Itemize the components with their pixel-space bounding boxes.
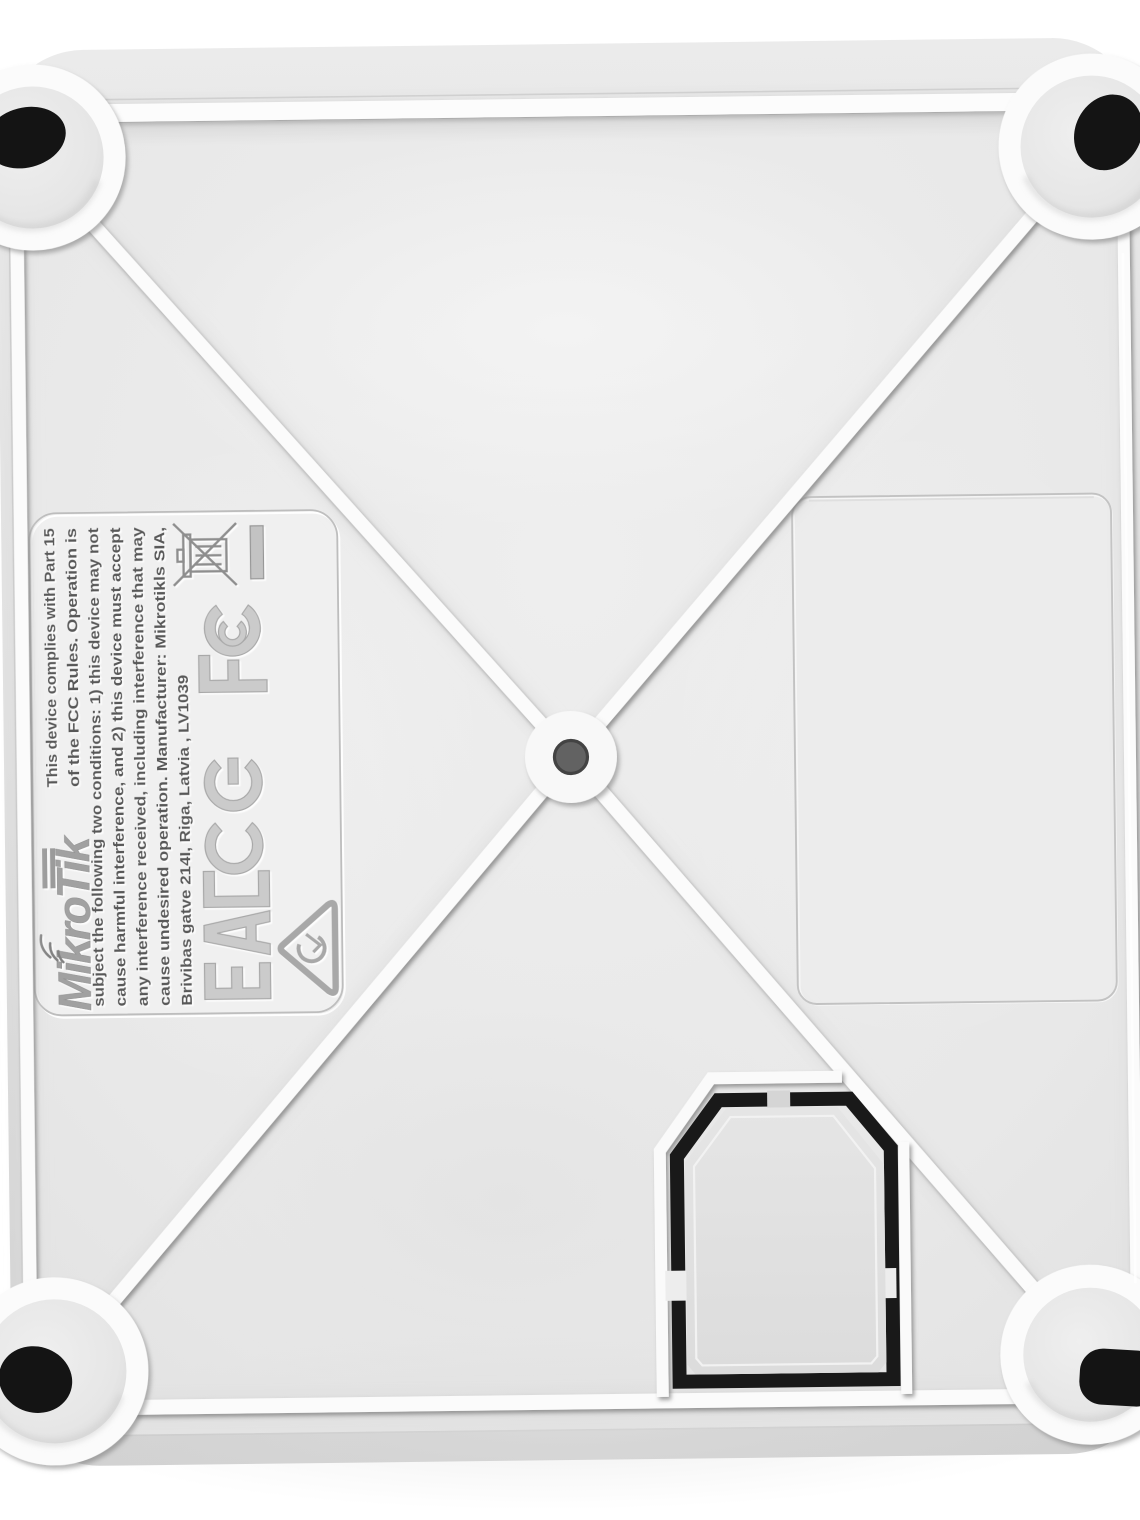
svg-text:This device complies with Part: This device complies with Part 15 xyxy=(42,528,61,787)
svg-text:of the FCC Rules. Operation i: of the FCC Rules. Operation is xyxy=(64,528,83,787)
